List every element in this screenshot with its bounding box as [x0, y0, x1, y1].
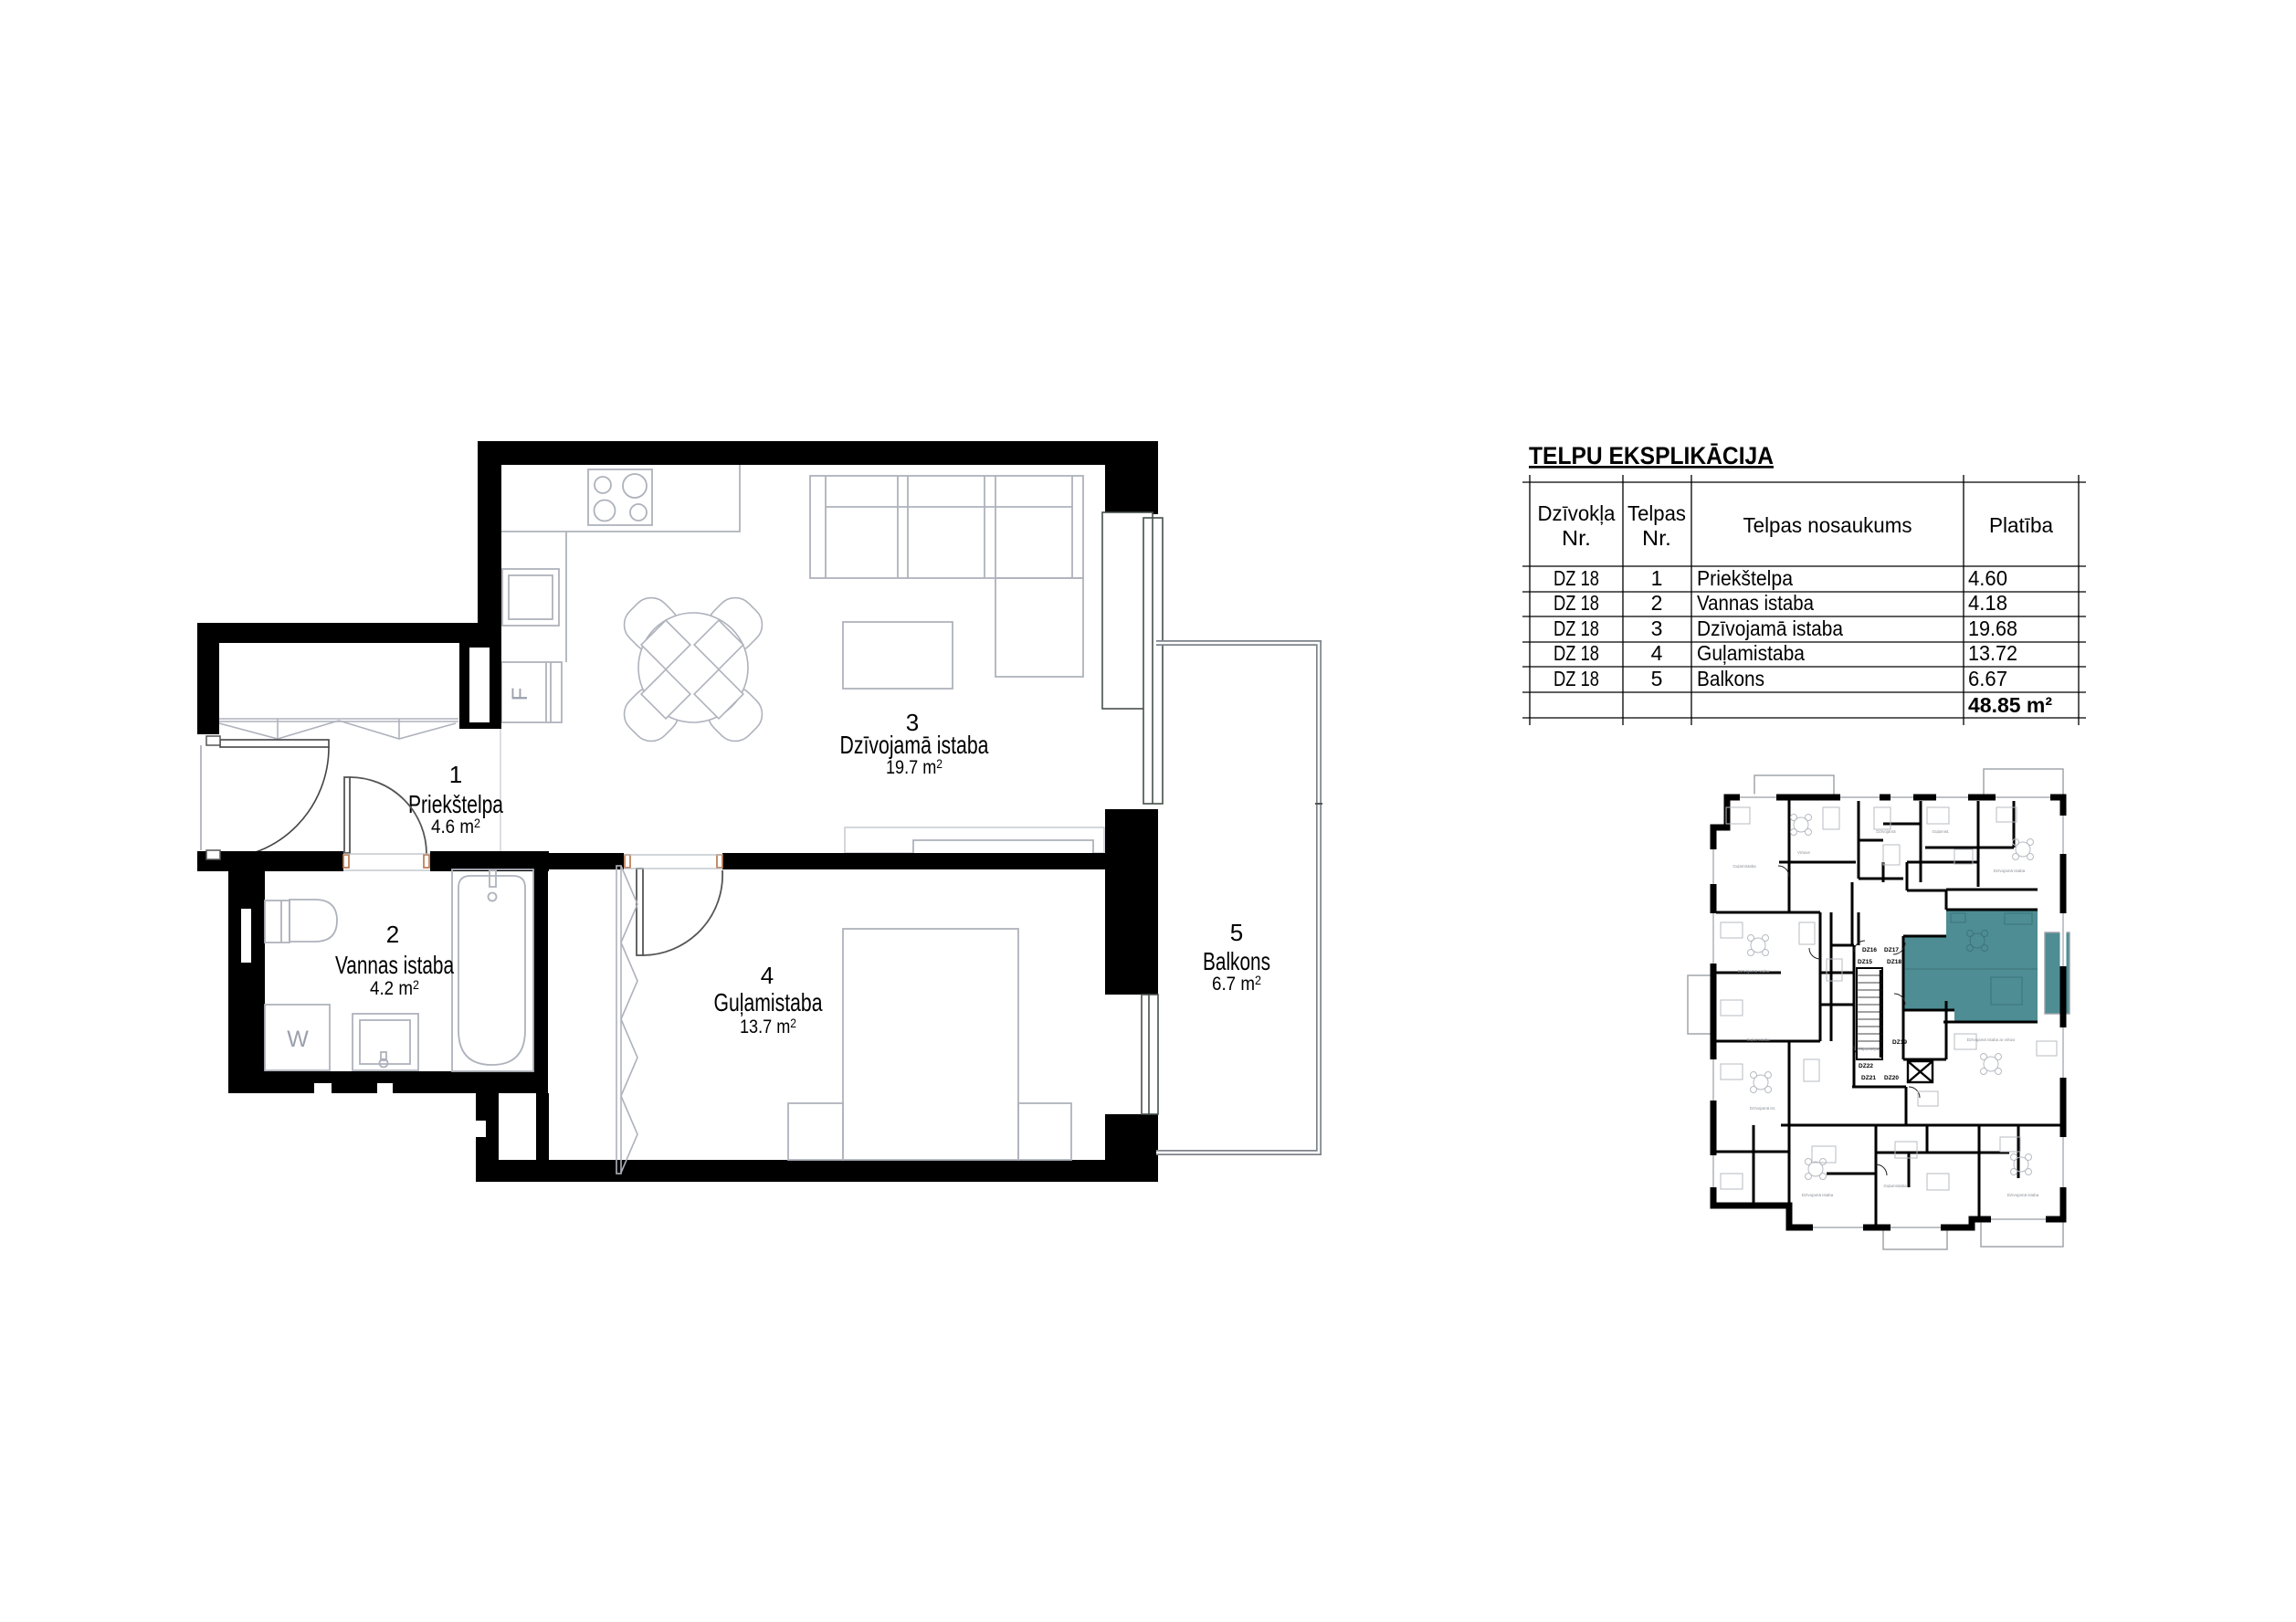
svg-text:2: 2 [1651, 591, 1663, 615]
svg-text:3: 3 [1651, 616, 1663, 640]
svg-text:Dzīvojamā istaba: Dzīvojamā istaba [1802, 1193, 1834, 1197]
svg-text:4.18: 4.18 [1968, 591, 2007, 615]
svg-text:4: 4 [761, 962, 774, 989]
svg-text:1: 1 [1651, 566, 1663, 590]
svg-text:Dzīvojamā istaba: Dzīvojamā istaba [1738, 969, 1770, 974]
svg-text:F: F [508, 688, 532, 701]
svg-text:4.2 m2: 4.2 m2 [370, 977, 419, 999]
svg-text:4.6 m2: 4.6 m2 [431, 816, 480, 837]
svg-text:Guļamistaba: Guļamistaba [1883, 1184, 1907, 1188]
svg-text:W: W [287, 1027, 309, 1052]
svg-text:Guļamistaba: Guļamistaba [714, 988, 823, 1016]
svg-text:Dzīvojamā istaba ar virtuvi: Dzīvojamā istaba ar virtuvi [1967, 1037, 2016, 1042]
svg-text:48.85 m²: 48.85 m² [1968, 693, 2052, 717]
svg-text:19.68: 19.68 [1968, 616, 2017, 640]
svg-text:DZ22: DZ22 [1859, 1063, 1873, 1069]
svg-text:DZ16: DZ16 [1862, 947, 1877, 953]
svg-text:Guļamistaba: Guļamistaba [1746, 1037, 1770, 1042]
svg-text:4: 4 [1651, 641, 1663, 665]
svg-text:DZ 18: DZ 18 [1553, 591, 1599, 615]
svg-text:TELPU EKSPLIKĀCIJA: TELPU EKSPLIKĀCIJA [1529, 442, 1774, 469]
svg-text:DZ 18: DZ 18 [1553, 667, 1599, 690]
svg-text:DZ 18: DZ 18 [1553, 641, 1599, 665]
svg-text:Dzīvojamā istaba: Dzīvojamā istaba [840, 731, 989, 759]
svg-text:4.60: 4.60 [1968, 566, 2007, 590]
svg-text:Vannas istaba: Vannas istaba [335, 951, 454, 979]
svg-text:Kāpņutelpa: Kāpņutelpa [1859, 1047, 1880, 1051]
svg-text:Virtuve: Virtuve [1797, 850, 1810, 855]
svg-text:13.72: 13.72 [1968, 641, 2017, 665]
svg-text:6.67: 6.67 [1968, 667, 2007, 690]
svg-text:Nr.: Nr. [1562, 526, 1591, 550]
svg-text:19.7 m2: 19.7 m2 [886, 756, 943, 778]
svg-text:Dzīvokļa: Dzīvokļa [1538, 501, 1616, 525]
svg-text:DZ 18: DZ 18 [1553, 566, 1599, 590]
svg-text:DZ20: DZ20 [1884, 1075, 1899, 1081]
svg-text:13.7 m2: 13.7 m2 [740, 1016, 796, 1037]
svg-text:DZ19: DZ19 [1892, 1039, 1907, 1046]
svg-text:Platība: Platība [1989, 513, 2053, 537]
svg-text:6.7 m2: 6.7 m2 [1212, 973, 1261, 995]
svg-text:Dzīvojamā istaba: Dzīvojamā istaba [2007, 1193, 2039, 1197]
svg-text:Priekštelpa: Priekštelpa [408, 790, 503, 818]
svg-text:Guļamistaba: Guļamistaba [1697, 641, 1805, 665]
svg-text:Guļamist.: Guļamist. [1932, 829, 1949, 834]
svg-text:Guļamistaba: Guļamistaba [1733, 864, 1756, 869]
svg-text:Balkons: Balkons [1203, 947, 1270, 975]
svg-text:DZ21: DZ21 [1861, 1075, 1876, 1081]
svg-text:DZ17: DZ17 [1884, 947, 1899, 953]
svg-text:Telpas nosaukums: Telpas nosaukums [1743, 513, 1912, 537]
svg-text:2: 2 [386, 921, 399, 948]
svg-text:DZ 18: DZ 18 [1553, 616, 1599, 640]
svg-text:Dzīvojamā ist.: Dzīvojamā ist. [1750, 1106, 1775, 1111]
svg-text:Dzīvojamā istaba: Dzīvojamā istaba [1994, 869, 2026, 873]
svg-text:Dzīvojamā istaba: Dzīvojamā istaba [1697, 616, 1843, 640]
svg-text:DZ18: DZ18 [1887, 959, 1901, 965]
svg-text:Priekštelpa: Priekštelpa [1697, 566, 1793, 590]
svg-text:DZ15: DZ15 [1858, 959, 1872, 965]
svg-text:5: 5 [1651, 667, 1663, 690]
svg-text:1: 1 [449, 761, 462, 788]
svg-text:Telpas: Telpas [1627, 501, 1686, 525]
svg-text:Vannas istaba: Vannas istaba [1697, 591, 1814, 615]
svg-text:5: 5 [1230, 919, 1243, 946]
svg-text:Balkons: Balkons [1697, 667, 1764, 690]
svg-text:Dzīvojamā: Dzīvojamā [1876, 829, 1896, 834]
svg-text:Nr.: Nr. [1642, 526, 1671, 550]
